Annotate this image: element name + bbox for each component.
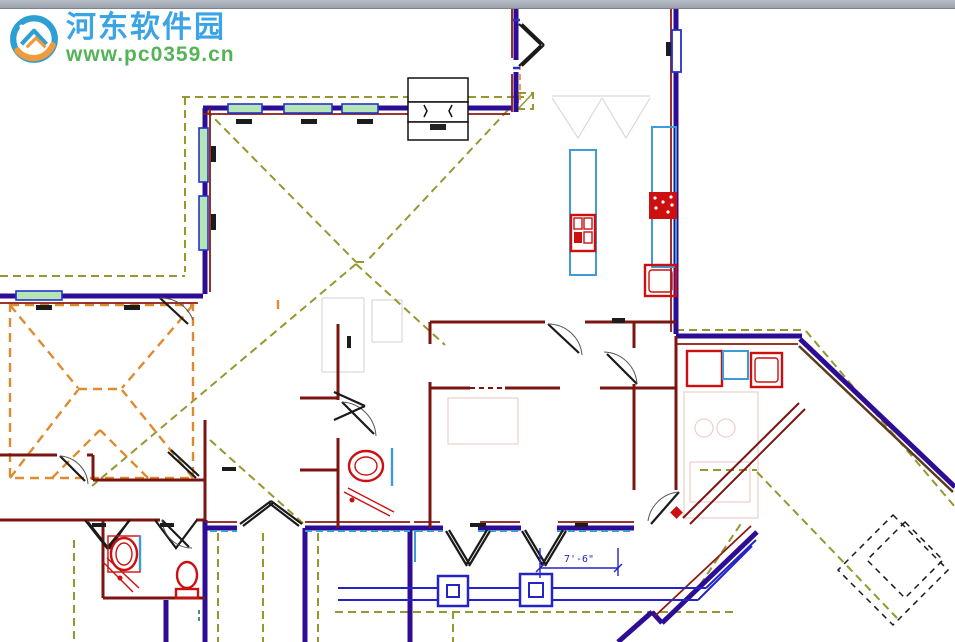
window-left-2 <box>199 196 208 250</box>
window-top-bar[interactable] <box>0 0 955 9</box>
porch-column-1 <box>438 576 468 606</box>
side-door <box>60 456 88 484</box>
drain-mark <box>118 576 123 581</box>
cooktop <box>649 192 677 219</box>
site-watermark: 河东软件园 www.pc0359.cn <box>8 12 235 66</box>
range <box>571 215 595 251</box>
bathroom-sink-2 <box>349 448 392 486</box>
porch-column-2 <box>520 574 552 606</box>
site-url: www.pc0359.cn <box>66 44 235 66</box>
site-name: 河东软件园 <box>66 12 235 44</box>
hall-door-1 <box>342 402 376 436</box>
fireplace <box>408 78 468 140</box>
window-top-3 <box>342 104 378 113</box>
laundry-sink <box>723 351 748 379</box>
site-logo-icon <box>8 13 60 65</box>
wing-door <box>648 492 679 524</box>
window-top-1 <box>228 104 262 113</box>
laundry-appliances <box>687 351 782 387</box>
drain-mark-2 <box>350 498 355 503</box>
window-top-2 <box>284 104 332 113</box>
garage-ceiling-dashed <box>838 515 948 625</box>
window-right <box>672 30 681 72</box>
cad-viewport: 7'-6" <box>0 0 955 642</box>
porch-door <box>160 298 193 324</box>
kitchen-door <box>548 324 582 355</box>
dryer <box>751 353 782 387</box>
french-doors <box>446 530 566 566</box>
toilet-1 <box>176 562 198 598</box>
washer <box>687 351 722 386</box>
window-left-1 <box>199 128 208 182</box>
floor-plan-canvas[interactable]: 7'-6" <box>0 0 955 642</box>
kitchen-island <box>570 150 596 275</box>
kitchen-fixtures <box>570 127 677 296</box>
windows <box>16 30 681 549</box>
faint-furniture <box>322 96 758 518</box>
mudroom-door <box>604 352 637 384</box>
dimension-text: 7'-6" <box>564 554 594 565</box>
doors <box>60 20 679 566</box>
window-porch <box>16 291 62 300</box>
